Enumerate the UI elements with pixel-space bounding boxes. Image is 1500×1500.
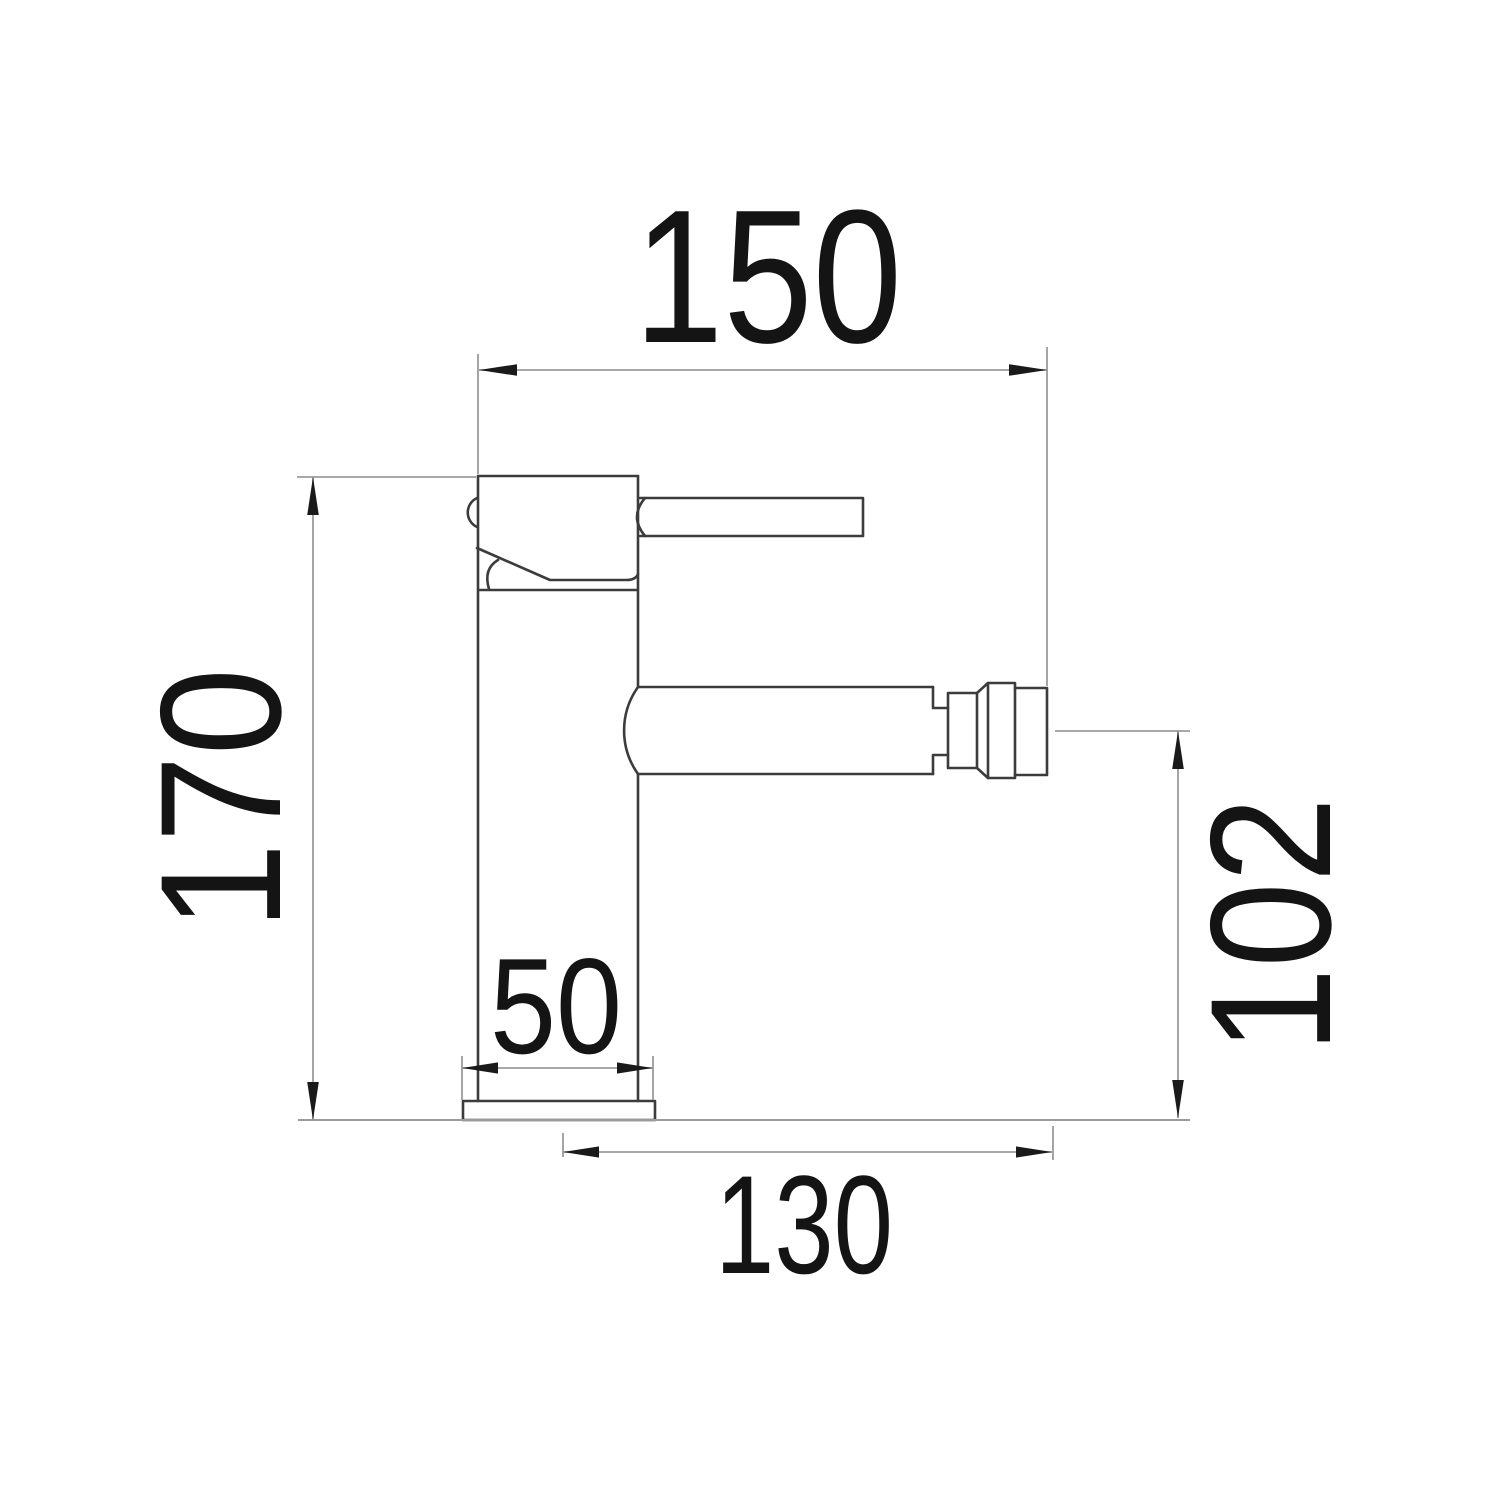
faucet-dimension-drawing: 150 170 102 50 bbox=[0, 0, 1500, 1500]
nozzle-tip-cap bbox=[1015, 688, 1047, 775]
dimension-top-width: 150 bbox=[478, 171, 1047, 686]
arrowhead-right bbox=[617, 1062, 653, 1073]
arrowhead-down bbox=[307, 1082, 319, 1120]
arrowhead-right bbox=[1009, 364, 1047, 376]
aerator-nozzle bbox=[948, 683, 1047, 778]
base-plate bbox=[463, 1101, 655, 1120]
dim-label-bottom-reach: 130 bbox=[715, 1146, 893, 1303]
nozzle-flare-cone bbox=[977, 683, 988, 778]
handle-lever bbox=[637, 498, 863, 536]
arrowhead-up bbox=[1172, 731, 1184, 769]
dim-label-right-height: 102 bbox=[1175, 797, 1367, 1053]
dimension-right-height: 102 bbox=[1055, 731, 1367, 1118]
dimension-bottom-reach: 130 bbox=[563, 1126, 1053, 1303]
arrowhead-left bbox=[563, 1146, 599, 1157]
dim-label-left-height: 170 bbox=[125, 668, 317, 930]
arrowhead-right bbox=[1016, 1146, 1052, 1157]
nozzle-ring-2 bbox=[988, 683, 1015, 778]
spout-junction-arc bbox=[624, 687, 638, 774]
spout bbox=[624, 687, 948, 774]
arrowhead-down bbox=[1172, 1080, 1184, 1118]
dim-label-top-width: 150 bbox=[634, 171, 902, 383]
lever-bar bbox=[640, 498, 863, 536]
spout-neck-bottom bbox=[933, 755, 948, 774]
arrowhead-left bbox=[479, 364, 517, 376]
arrowhead-up bbox=[307, 477, 319, 515]
skirt-front-arc bbox=[487, 560, 498, 589]
cartridge-bump-arc bbox=[468, 498, 477, 527]
handle-block-skirt-edge bbox=[477, 548, 638, 580]
dimension-drawing-page: 150 170 102 50 bbox=[0, 0, 1500, 1500]
dimension-left-height: 170 bbox=[125, 477, 476, 1120]
dim-label-base-width: 50 bbox=[490, 930, 622, 1082]
spout-neck-top bbox=[933, 687, 948, 708]
dimension-base-width: 50 bbox=[462, 930, 653, 1100]
nozzle-ring-1 bbox=[948, 693, 977, 768]
